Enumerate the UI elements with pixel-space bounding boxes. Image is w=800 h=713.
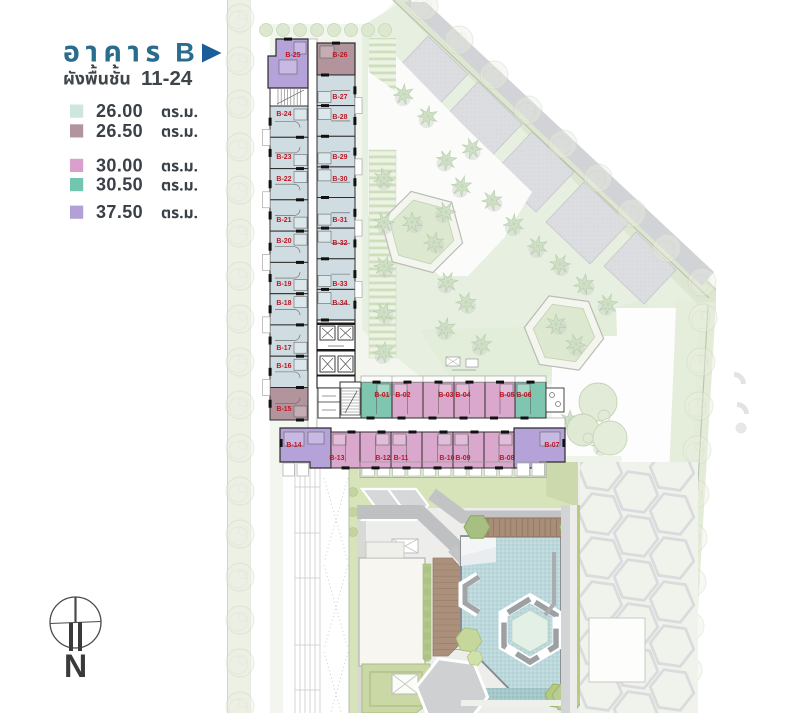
svg-text:B-03: B-03	[438, 392, 453, 399]
svg-text:B-14: B-14	[286, 442, 301, 449]
svg-text:B-01: B-01	[374, 392, 389, 399]
svg-text:B-32: B-32	[332, 240, 347, 247]
svg-text:B-11: B-11	[394, 455, 409, 462]
svg-text:B-28: B-28	[332, 114, 347, 121]
svg-text:B: B	[175, 38, 195, 68]
svg-text:B-16: B-16	[276, 363, 291, 370]
svg-text:B-29: B-29	[332, 154, 347, 161]
svg-text:B-15: B-15	[276, 406, 291, 413]
svg-text:B-24: B-24	[276, 111, 291, 118]
svg-text:B-19: B-19	[276, 281, 291, 288]
svg-text:B-20: B-20	[276, 238, 291, 245]
svg-text:B-34: B-34	[332, 300, 347, 307]
svg-text:B-21: B-21	[276, 217, 291, 224]
svg-text:B-08: B-08	[499, 455, 514, 462]
svg-text:B-26: B-26	[332, 52, 347, 59]
svg-text:26.00: 26.00	[96, 101, 143, 121]
svg-text:11-24: 11-24	[141, 67, 193, 90]
svg-text:B-22: B-22	[276, 176, 291, 183]
svg-text:B-07: B-07	[544, 442, 559, 449]
svg-text:B-23: B-23	[276, 154, 291, 161]
svg-text:26.50: 26.50	[96, 121, 143, 141]
svg-text:N: N	[64, 648, 87, 684]
svg-text:B-02: B-02	[395, 392, 410, 399]
svg-text:B-25: B-25	[285, 52, 300, 59]
svg-text:B-12: B-12	[375, 455, 390, 462]
svg-text:B-18: B-18	[276, 300, 291, 307]
svg-text:B-33: B-33	[332, 281, 347, 288]
svg-text:B-31: B-31	[332, 217, 347, 224]
svg-text:B-04: B-04	[455, 392, 470, 399]
svg-text:B-06: B-06	[516, 392, 531, 399]
svg-text:B-10: B-10	[439, 455, 454, 462]
svg-text:37.50: 37.50	[96, 202, 143, 222]
svg-text:30.00: 30.00	[96, 155, 143, 175]
svg-text:B-05: B-05	[499, 392, 514, 399]
svg-text:B-27: B-27	[332, 94, 347, 101]
svg-text:30.50: 30.50	[96, 175, 143, 195]
svg-text:B-09: B-09	[455, 455, 470, 462]
svg-text:B-30: B-30	[332, 176, 347, 183]
svg-text:B-17: B-17	[276, 345, 291, 352]
svg-text:B-13: B-13	[329, 455, 344, 462]
